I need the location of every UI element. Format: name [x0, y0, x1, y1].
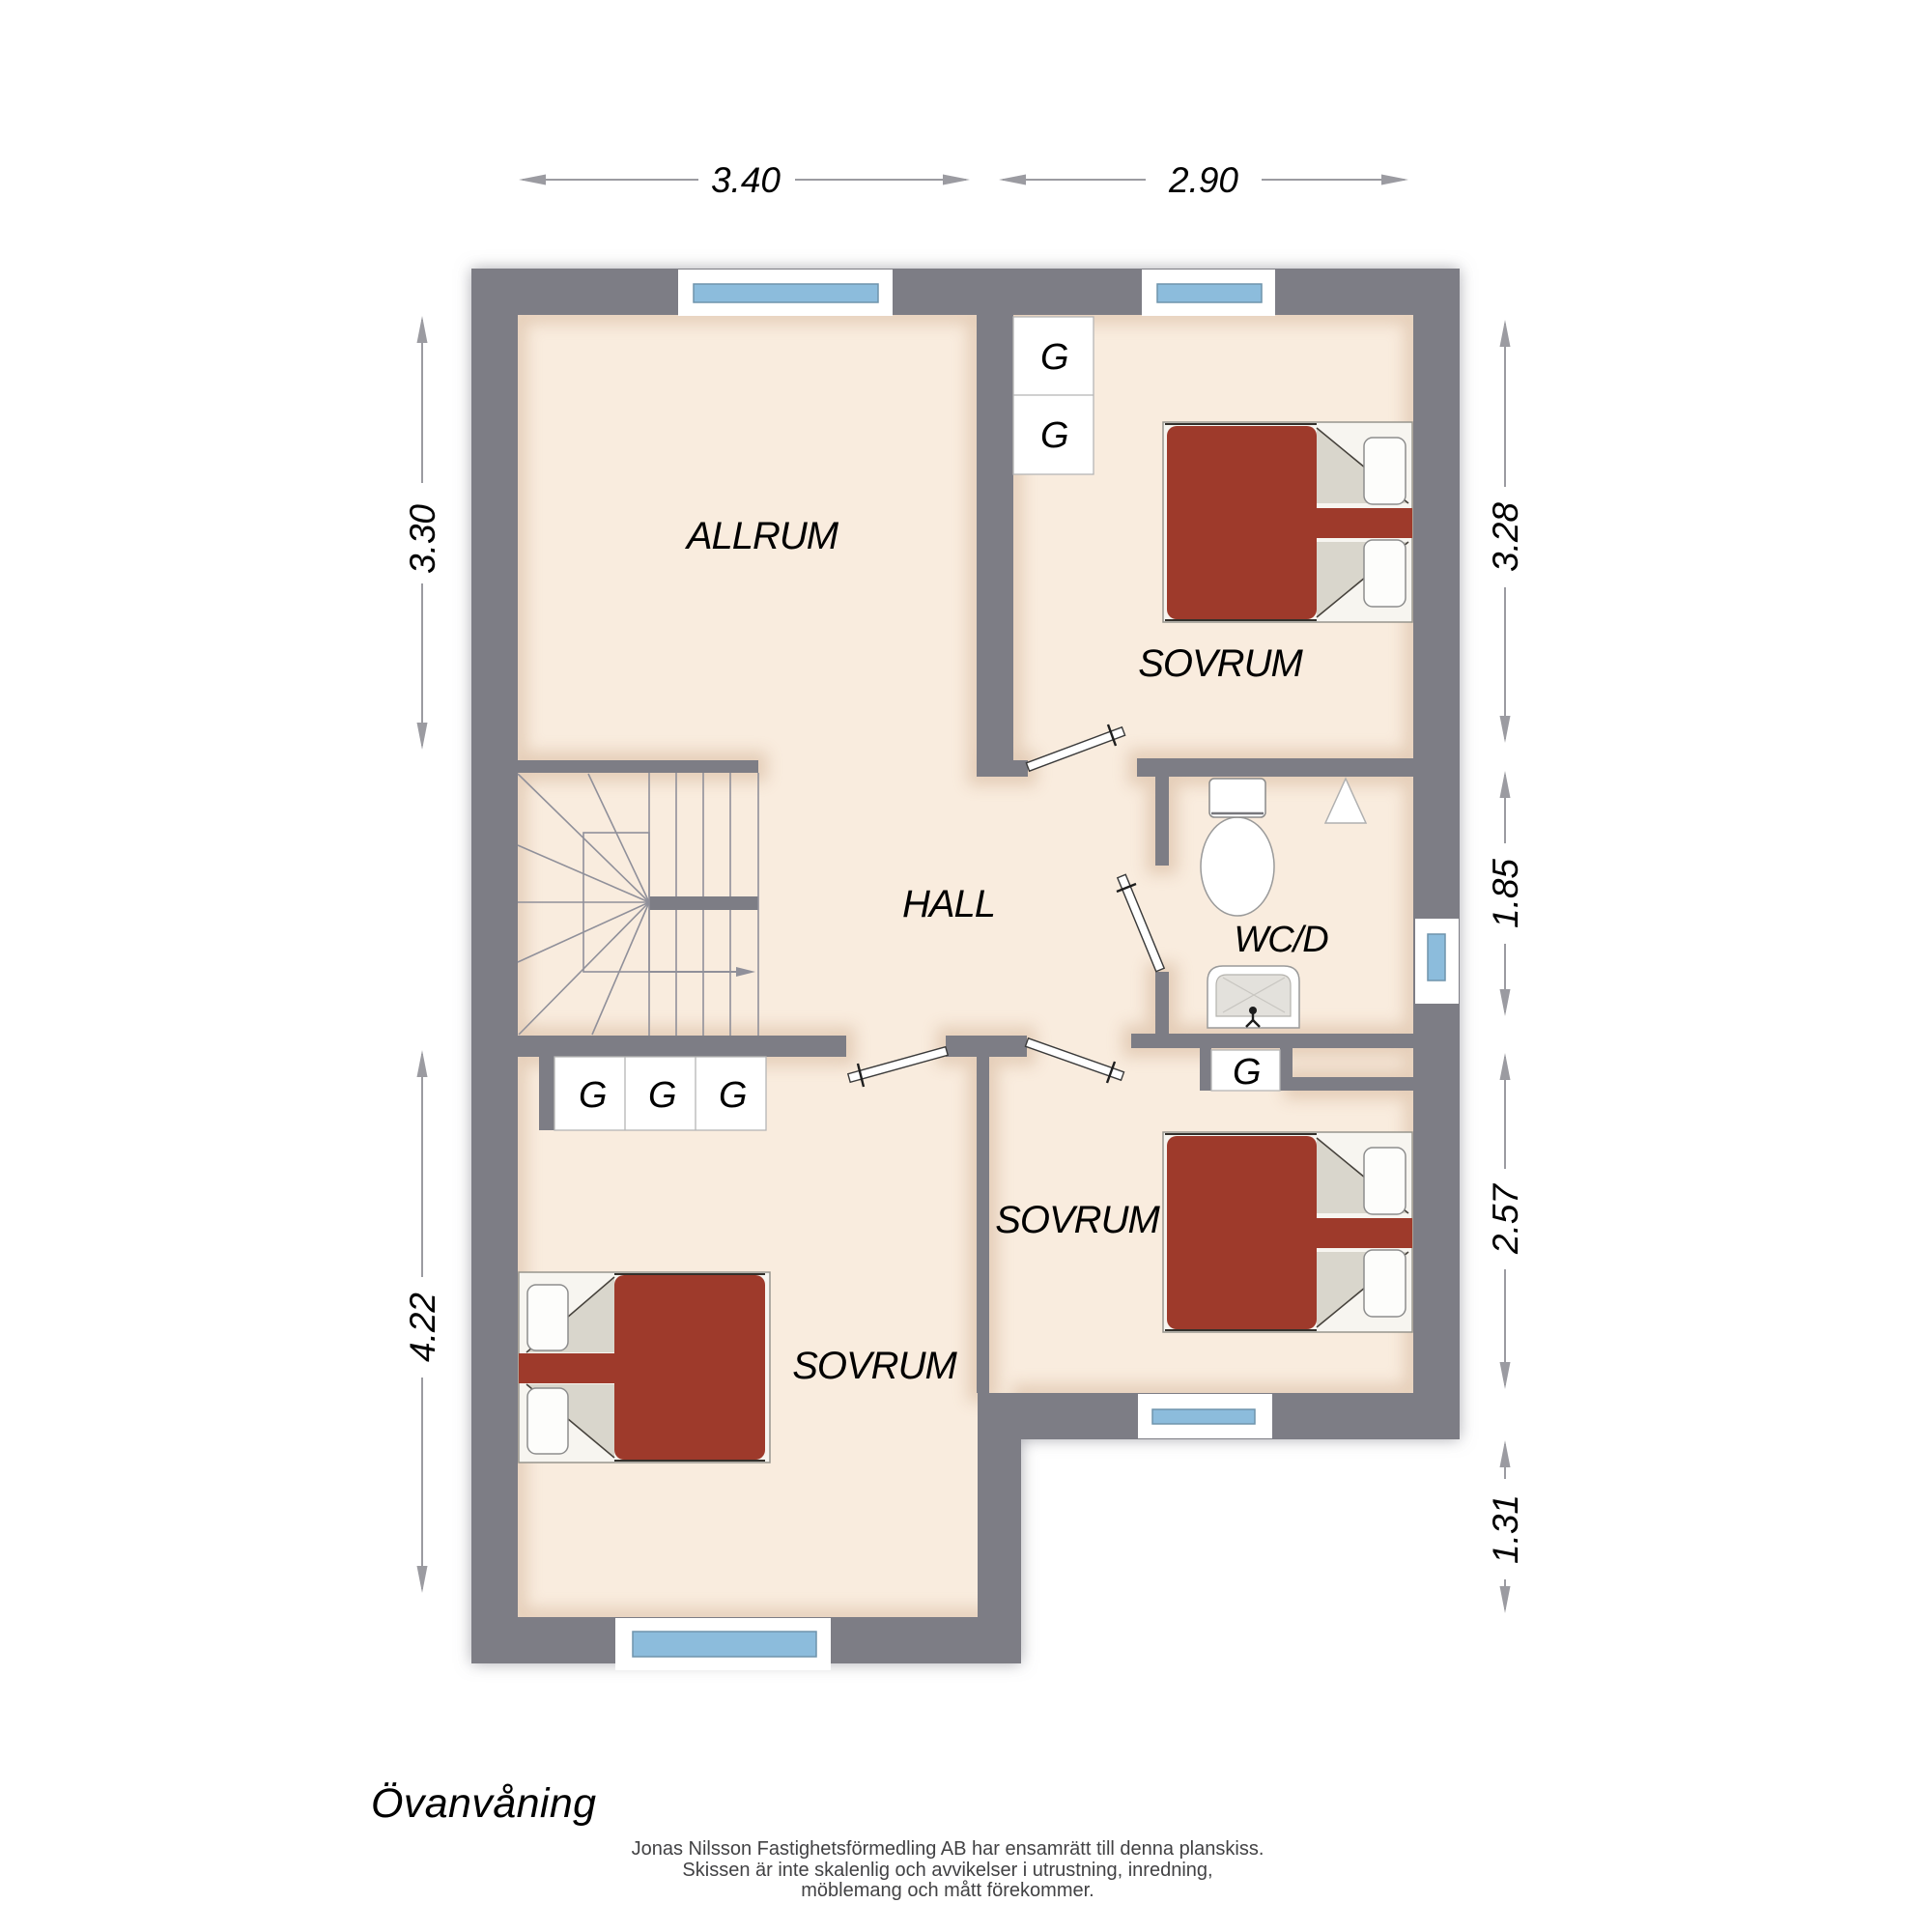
svg-text:Jonas Nilsson Fastighetsförmed: Jonas Nilsson Fastighetsförmedling AB ha… — [632, 1838, 1264, 1860]
svg-text:2.57: 2.57 — [1486, 1183, 1525, 1255]
svg-text:SOVRUM: SOVRUM — [995, 1199, 1160, 1241]
svg-text:WC/D: WC/D — [1234, 920, 1328, 960]
svg-text:3.30: 3.30 — [403, 504, 442, 574]
svg-text:2.90: 2.90 — [1168, 160, 1238, 200]
svg-text:möblemang och mått förekommer.: möblemang och mått förekommer. — [801, 1880, 1094, 1901]
svg-text:G: G — [579, 1075, 608, 1116]
svg-text:ALLRUM: ALLRUM — [685, 515, 839, 557]
svg-text:G: G — [1233, 1052, 1262, 1093]
svg-text:1.31: 1.31 — [1486, 1494, 1525, 1564]
svg-text:3.40: 3.40 — [711, 160, 781, 200]
svg-text:G: G — [719, 1075, 748, 1116]
svg-text:G: G — [1040, 415, 1069, 456]
svg-text:HALL: HALL — [902, 883, 995, 925]
svg-text:1.85: 1.85 — [1486, 859, 1525, 928]
svg-text:G: G — [648, 1075, 677, 1116]
svg-text:SOVRUM: SOVRUM — [1138, 642, 1303, 685]
svg-text:Skissen är inte skalenlig och: Skissen är inte skalenlig och avvikelser… — [682, 1860, 1212, 1881]
svg-text:Övanvåning: Övanvåning — [371, 1780, 597, 1827]
svg-text:4.22: 4.22 — [403, 1293, 442, 1362]
svg-text:3.28: 3.28 — [1486, 502, 1525, 572]
svg-text:G: G — [1040, 337, 1069, 378]
svg-text:SOVRUM: SOVRUM — [792, 1345, 957, 1387]
